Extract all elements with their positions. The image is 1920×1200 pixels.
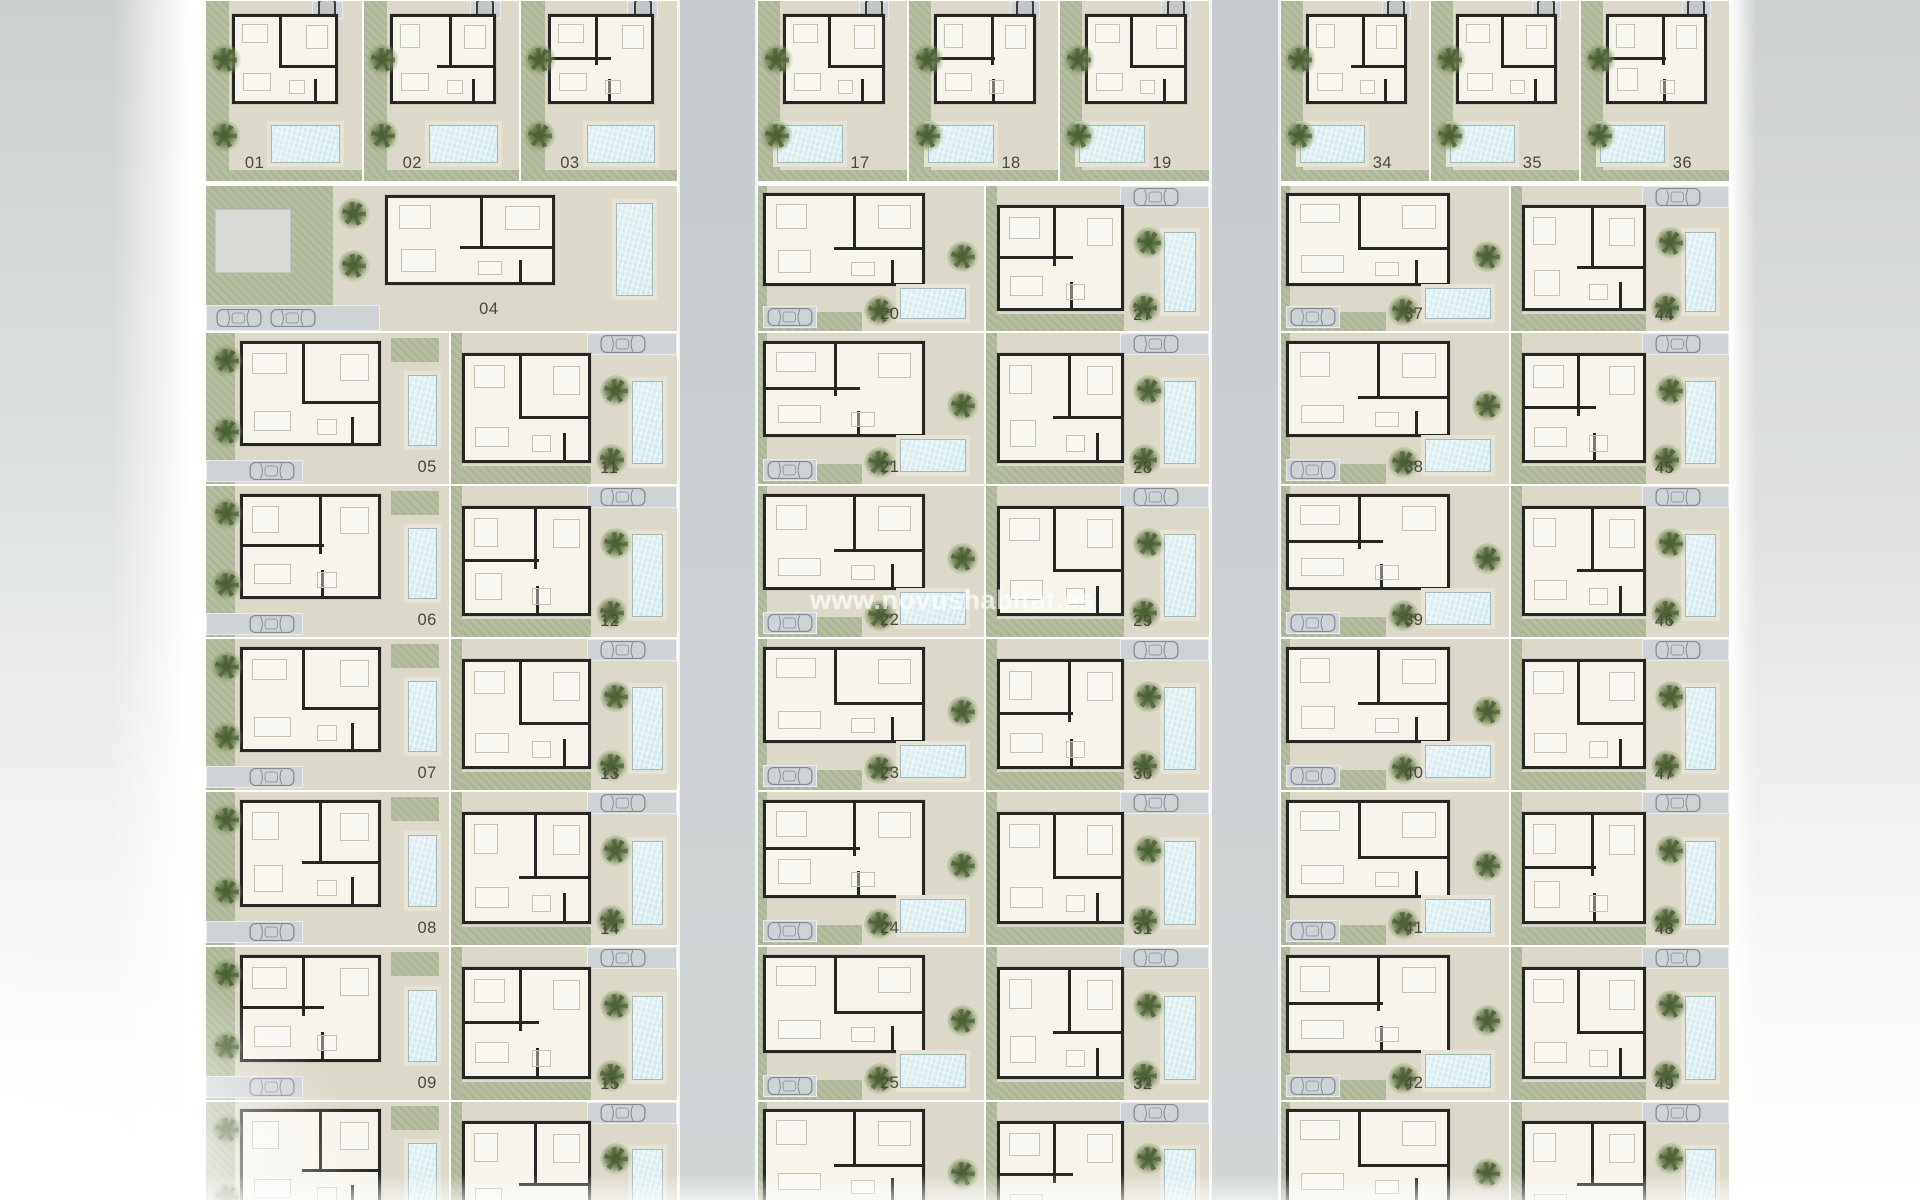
garden-strip — [986, 186, 997, 331]
interior-wall — [534, 815, 537, 876]
furniture-outline — [851, 1180, 875, 1194]
garden-strip — [451, 486, 462, 637]
plot-42: 42 — [1280, 946, 1510, 1101]
house-footprint — [763, 1109, 926, 1200]
driveway — [206, 613, 303, 635]
furniture-outline — [1589, 284, 1608, 300]
furniture-outline — [851, 1027, 875, 1042]
interior-wall — [1415, 717, 1418, 741]
swimming-pool — [1425, 745, 1491, 778]
interior-wall — [937, 57, 994, 60]
swimming-pool — [1685, 841, 1716, 925]
interior-wall — [519, 416, 588, 419]
interior-wall — [1130, 17, 1133, 66]
furniture-outline — [1301, 1173, 1344, 1191]
house-footprint — [462, 353, 591, 463]
furniture-outline — [1087, 218, 1113, 246]
plot-30: 30 — [985, 638, 1210, 791]
plot-15: 15 — [450, 946, 678, 1101]
swimming-pool — [408, 375, 437, 446]
furniture-outline — [254, 564, 291, 584]
house-footprint — [997, 812, 1124, 924]
furniture-outline — [1609, 519, 1635, 548]
plot-number: 37 — [1404, 305, 1423, 324]
furniture-outline — [878, 659, 911, 685]
furniture-outline — [1010, 733, 1043, 754]
plot-number: 34 — [1373, 154, 1392, 173]
swimming-pool — [1079, 125, 1145, 163]
interior-wall — [828, 65, 881, 68]
furniture-outline — [400, 24, 420, 48]
interior-wall — [302, 344, 305, 402]
furniture-outline — [1301, 405, 1344, 423]
furniture-outline — [1533, 824, 1556, 853]
furniture-outline — [1087, 825, 1113, 854]
furniture-outline — [1066, 284, 1085, 300]
swimming-pool — [271, 125, 339, 163]
furniture-outline — [1009, 979, 1033, 1008]
plot-14: 14 — [450, 791, 678, 946]
interior-wall — [1577, 1183, 1643, 1186]
furniture-outline — [1066, 741, 1085, 758]
interior-wall — [834, 702, 922, 705]
driveway — [1286, 306, 1341, 328]
driveway — [1286, 920, 1341, 942]
garden-patch — [1522, 314, 1646, 331]
furniture-outline — [776, 966, 816, 986]
house-footprint — [1286, 955, 1450, 1053]
furniture-outline — [1375, 412, 1399, 427]
house-footprint — [240, 341, 381, 447]
house-footprint — [240, 955, 381, 1062]
furniture-outline — [475, 733, 509, 754]
plot-number: 01 — [245, 154, 264, 173]
furniture-outline — [401, 73, 429, 90]
garden-strip — [1511, 333, 1522, 484]
plot-18: 18 — [908, 0, 1059, 182]
house-footprint — [240, 494, 381, 600]
driveway — [587, 1102, 677, 1124]
plot-40: 40 — [1280, 638, 1510, 791]
furniture-outline — [553, 519, 580, 548]
plot-number: 44 — [1655, 306, 1674, 325]
swimming-pool — [900, 288, 966, 320]
plot-number: 24 — [880, 919, 899, 938]
swimming-pool — [1685, 381, 1716, 464]
garden-patch — [1522, 619, 1646, 637]
furniture-outline — [464, 25, 486, 49]
tree-icon — [338, 250, 370, 282]
house-footprint — [1522, 967, 1646, 1079]
plot-number: 12 — [600, 612, 619, 631]
interior-wall — [243, 544, 324, 547]
furniture-outline — [317, 725, 338, 741]
driveway — [1120, 639, 1209, 661]
plot-44: 44 — [1510, 185, 1730, 332]
driveway — [206, 1076, 303, 1098]
furniture-outline — [1087, 980, 1113, 1009]
garden-patch — [1522, 927, 1646, 945]
car-icon — [1655, 487, 1701, 507]
garden-strip — [1511, 947, 1522, 1100]
car-icon — [600, 487, 646, 507]
furniture-outline — [1589, 1050, 1608, 1067]
furniture-outline — [532, 895, 551, 912]
plot-partial — [205, 1101, 450, 1200]
tree-icon — [1133, 1143, 1165, 1175]
interior-wall — [1130, 65, 1183, 68]
driveway — [1120, 486, 1209, 508]
interior-wall — [519, 356, 522, 416]
plot-number: 28 — [1133, 459, 1152, 478]
plot-46: 46 — [1510, 485, 1730, 638]
interior-wall — [1358, 1112, 1361, 1163]
driveway — [1286, 459, 1341, 481]
plot-number: 32 — [1133, 1075, 1152, 1094]
house-footprint — [763, 494, 926, 591]
tree-icon — [1133, 528, 1165, 560]
garden-strip — [451, 333, 462, 484]
garden-patch — [997, 314, 1124, 331]
plot-number: 36 — [1673, 154, 1692, 173]
furniture-outline — [1534, 1042, 1567, 1063]
interior-wall — [834, 1164, 922, 1167]
garden-patch — [1522, 466, 1646, 484]
interior-wall — [1000, 712, 1073, 715]
tree-icon — [1655, 990, 1687, 1022]
garden-patch — [462, 1082, 591, 1100]
furniture-outline — [1301, 1020, 1344, 1039]
house-footprint — [934, 14, 1035, 104]
car-icon — [1655, 334, 1701, 354]
swimming-pool — [1164, 232, 1195, 312]
interior-wall — [1351, 65, 1404, 68]
furniture-outline — [1316, 24, 1335, 48]
garden-patch — [391, 338, 440, 362]
furniture-outline — [252, 506, 278, 534]
swimming-pool — [1164, 381, 1195, 464]
plot-05: 05 — [205, 332, 450, 485]
furniture-outline — [1533, 217, 1556, 245]
plot-number: 47 — [1655, 765, 1674, 784]
interior-wall — [465, 1021, 539, 1024]
furniture-outline — [475, 427, 509, 448]
driveway — [1642, 947, 1729, 969]
plot-number: 49 — [1655, 1075, 1674, 1094]
interior-wall — [1000, 1173, 1073, 1176]
car-icon — [216, 308, 262, 328]
furniture-outline — [254, 411, 291, 431]
furniture-outline — [1402, 506, 1436, 532]
interior-wall — [1577, 569, 1643, 572]
interior-wall — [834, 1011, 922, 1014]
furniture-outline — [1087, 519, 1113, 548]
interior-wall — [302, 401, 378, 404]
interior-wall — [519, 260, 522, 282]
driveway — [1642, 639, 1729, 661]
interior-wall — [351, 417, 354, 443]
furniture-outline — [1609, 980, 1635, 1009]
driveway — [206, 460, 303, 482]
plot-partial — [757, 1101, 985, 1200]
interior-wall — [1591, 1124, 1594, 1183]
furniture-outline — [1402, 659, 1436, 685]
furniture-outline — [254, 1026, 291, 1046]
plot-partial — [1280, 1101, 1510, 1200]
interior-wall — [460, 246, 552, 249]
interior-wall — [1096, 433, 1099, 460]
interior-wall — [319, 803, 322, 862]
plot-12: 12 — [450, 485, 678, 638]
interior-wall — [1577, 662, 1580, 722]
furniture-outline — [989, 80, 1004, 94]
furniture-outline — [1009, 824, 1040, 847]
house-footprint — [462, 812, 591, 924]
furniture-outline — [1010, 420, 1036, 447]
car-icon — [767, 307, 813, 327]
furniture-outline — [252, 967, 286, 989]
interior-wall — [1096, 1048, 1099, 1075]
plot-39: 39 — [1280, 485, 1510, 638]
plot-23: 23 — [757, 638, 985, 791]
furniture-outline — [1301, 558, 1344, 576]
house-footprint — [462, 967, 591, 1079]
plot-number: 35 — [1523, 154, 1542, 173]
driveway — [1120, 947, 1209, 969]
garden-patch — [1522, 1082, 1646, 1100]
plot-number: 40 — [1404, 764, 1423, 783]
furniture-outline — [851, 412, 875, 427]
car-icon — [1290, 307, 1336, 327]
house-footprint — [232, 14, 338, 104]
car-icon — [1655, 640, 1701, 660]
garden-patch — [758, 170, 907, 181]
interior-wall — [279, 65, 335, 68]
swimming-pool — [1425, 439, 1491, 472]
furniture-outline — [1096, 73, 1123, 90]
furniture-outline — [1466, 24, 1491, 43]
furniture-outline — [1375, 565, 1399, 580]
house-footprint — [997, 659, 1124, 769]
plot-number: 39 — [1404, 611, 1423, 630]
house-footprint — [1522, 1121, 1646, 1200]
plot-number: 05 — [418, 458, 437, 477]
interior-wall — [1577, 266, 1643, 269]
interior-wall — [519, 662, 522, 722]
house-footprint — [1522, 353, 1646, 463]
interior-wall — [1000, 256, 1073, 259]
plot-17: 17 — [757, 0, 908, 182]
road-vertical-2 — [1210, 0, 1280, 1200]
interior-wall — [891, 564, 894, 588]
driveway — [763, 765, 817, 787]
tree-icon — [1133, 375, 1165, 407]
swimming-pool — [408, 681, 437, 752]
interior-wall — [1358, 396, 1447, 399]
furniture-outline — [776, 811, 806, 837]
car-icon — [1133, 1103, 1179, 1123]
interior-wall — [834, 247, 922, 250]
interior-wall — [1501, 17, 1504, 66]
furniture-outline — [1360, 80, 1375, 94]
car-icon — [249, 1077, 295, 1097]
furniture-outline — [778, 859, 811, 883]
furniture-outline — [776, 1120, 806, 1145]
furniture-outline — [340, 354, 369, 382]
furniture-outline — [1087, 672, 1113, 701]
furniture-outline — [1609, 366, 1635, 395]
concrete-pad — [215, 209, 290, 273]
car-icon — [600, 1103, 646, 1123]
furniture-outline — [1156, 25, 1177, 49]
plot-number: 41 — [1404, 919, 1423, 938]
interior-wall — [465, 559, 539, 562]
interior-wall — [891, 1026, 894, 1050]
furniture-outline — [778, 405, 821, 423]
car-icon — [249, 461, 295, 481]
interior-wall — [1577, 1031, 1643, 1034]
house-footprint — [385, 195, 555, 285]
swimming-pool — [900, 439, 966, 472]
interior-wall — [1358, 247, 1447, 250]
driveway — [206, 766, 303, 788]
plot-number: 19 — [1152, 154, 1171, 173]
swimming-pool — [1425, 592, 1491, 625]
furniture-outline — [474, 671, 505, 694]
furniture-outline — [553, 980, 580, 1009]
swimming-pool — [408, 528, 437, 599]
driveway — [587, 486, 677, 508]
plot-45: 45 — [1510, 332, 1730, 485]
garden-patch — [462, 772, 591, 790]
swimming-pool — [408, 990, 437, 1062]
furniture-outline — [1300, 505, 1340, 525]
furniture-outline — [1617, 68, 1638, 90]
driveway — [587, 333, 677, 355]
furniture-outline — [474, 518, 498, 547]
furniture-outline — [1402, 1121, 1436, 1146]
car-icon — [1655, 793, 1701, 813]
garden-patch — [462, 619, 591, 637]
furniture-outline — [1301, 255, 1344, 273]
tree-icon — [1472, 241, 1504, 273]
garden-strip — [451, 639, 462, 790]
house-footprint — [548, 14, 654, 104]
furniture-outline — [793, 24, 818, 43]
plot-08: 08 — [205, 791, 450, 946]
garden-strip — [986, 947, 997, 1100]
swimming-pool — [1164, 841, 1195, 925]
interior-wall — [1358, 803, 1361, 856]
interior-wall — [1525, 866, 1596, 869]
interior-wall — [1096, 586, 1099, 613]
furniture-outline — [532, 741, 551, 758]
garden-patch — [1522, 772, 1646, 790]
car-icon — [1133, 948, 1179, 968]
interior-wall — [1163, 79, 1166, 101]
driveway — [1286, 612, 1341, 634]
house-footprint — [1286, 1109, 1450, 1200]
car-icon — [767, 613, 813, 633]
tree-icon — [600, 1143, 632, 1175]
interior-wall — [437, 65, 493, 68]
garden-strip — [1511, 639, 1522, 790]
furniture-outline — [254, 1179, 291, 1199]
road-vertical-1 — [678, 0, 757, 1200]
interior-wall — [519, 722, 588, 725]
car-icon — [600, 640, 646, 660]
interior-wall — [519, 1183, 588, 1186]
furniture-outline — [778, 711, 821, 729]
interior-wall — [1415, 1178, 1418, 1200]
interior-wall — [1053, 815, 1056, 876]
furniture-outline — [475, 1042, 509, 1063]
furniture-outline — [778, 1173, 821, 1191]
garden-patch — [997, 619, 1124, 637]
furniture-outline — [289, 80, 305, 94]
plot-32: 32 — [985, 946, 1210, 1101]
furniture-outline — [252, 1121, 278, 1148]
furniture-outline — [1402, 812, 1436, 838]
interior-wall — [1289, 1002, 1384, 1005]
furniture-outline — [1533, 518, 1556, 547]
furniture-outline — [878, 506, 911, 532]
car-icon — [1290, 766, 1336, 786]
interior-wall — [891, 717, 894, 741]
garden-strip — [451, 792, 462, 945]
plot-number: 18 — [1001, 154, 1020, 173]
furniture-outline — [1066, 435, 1085, 452]
driveway — [1120, 186, 1209, 208]
swimming-pool — [632, 534, 664, 617]
furniture-outline — [878, 1121, 911, 1146]
furniture-outline — [478, 261, 503, 275]
furniture-outline — [553, 366, 580, 395]
interior-wall — [1619, 739, 1622, 766]
furniture-outline — [306, 25, 328, 49]
car-icon — [600, 948, 646, 968]
furniture-outline — [254, 865, 283, 891]
driveway — [763, 1075, 817, 1097]
interior-wall — [853, 196, 856, 246]
interior-wall — [1358, 856, 1447, 859]
house-footprint — [997, 205, 1124, 311]
house-footprint — [763, 193, 926, 286]
garden-patch — [521, 170, 677, 181]
interior-wall — [351, 1185, 354, 1200]
furniture-outline — [475, 887, 509, 908]
house-footprint — [462, 506, 591, 616]
house-footprint — [763, 955, 926, 1053]
furniture-outline — [1140, 80, 1155, 94]
garden-patch — [1431, 170, 1579, 181]
furniture-outline — [242, 24, 268, 43]
interior-wall — [519, 876, 588, 879]
furniture-outline — [776, 505, 806, 531]
driveway — [1642, 486, 1729, 508]
car-icon — [1655, 1103, 1701, 1123]
furniture-outline — [878, 205, 911, 230]
interior-wall — [472, 79, 475, 101]
plot-number: 23 — [880, 764, 899, 783]
interior-wall — [1591, 509, 1594, 569]
furniture-outline — [944, 24, 963, 48]
interior-wall — [1619, 282, 1622, 308]
tree-icon — [947, 1158, 979, 1190]
furniture-outline — [243, 73, 271, 90]
furniture-outline — [399, 205, 430, 229]
garden-strip — [1511, 1102, 1522, 1200]
